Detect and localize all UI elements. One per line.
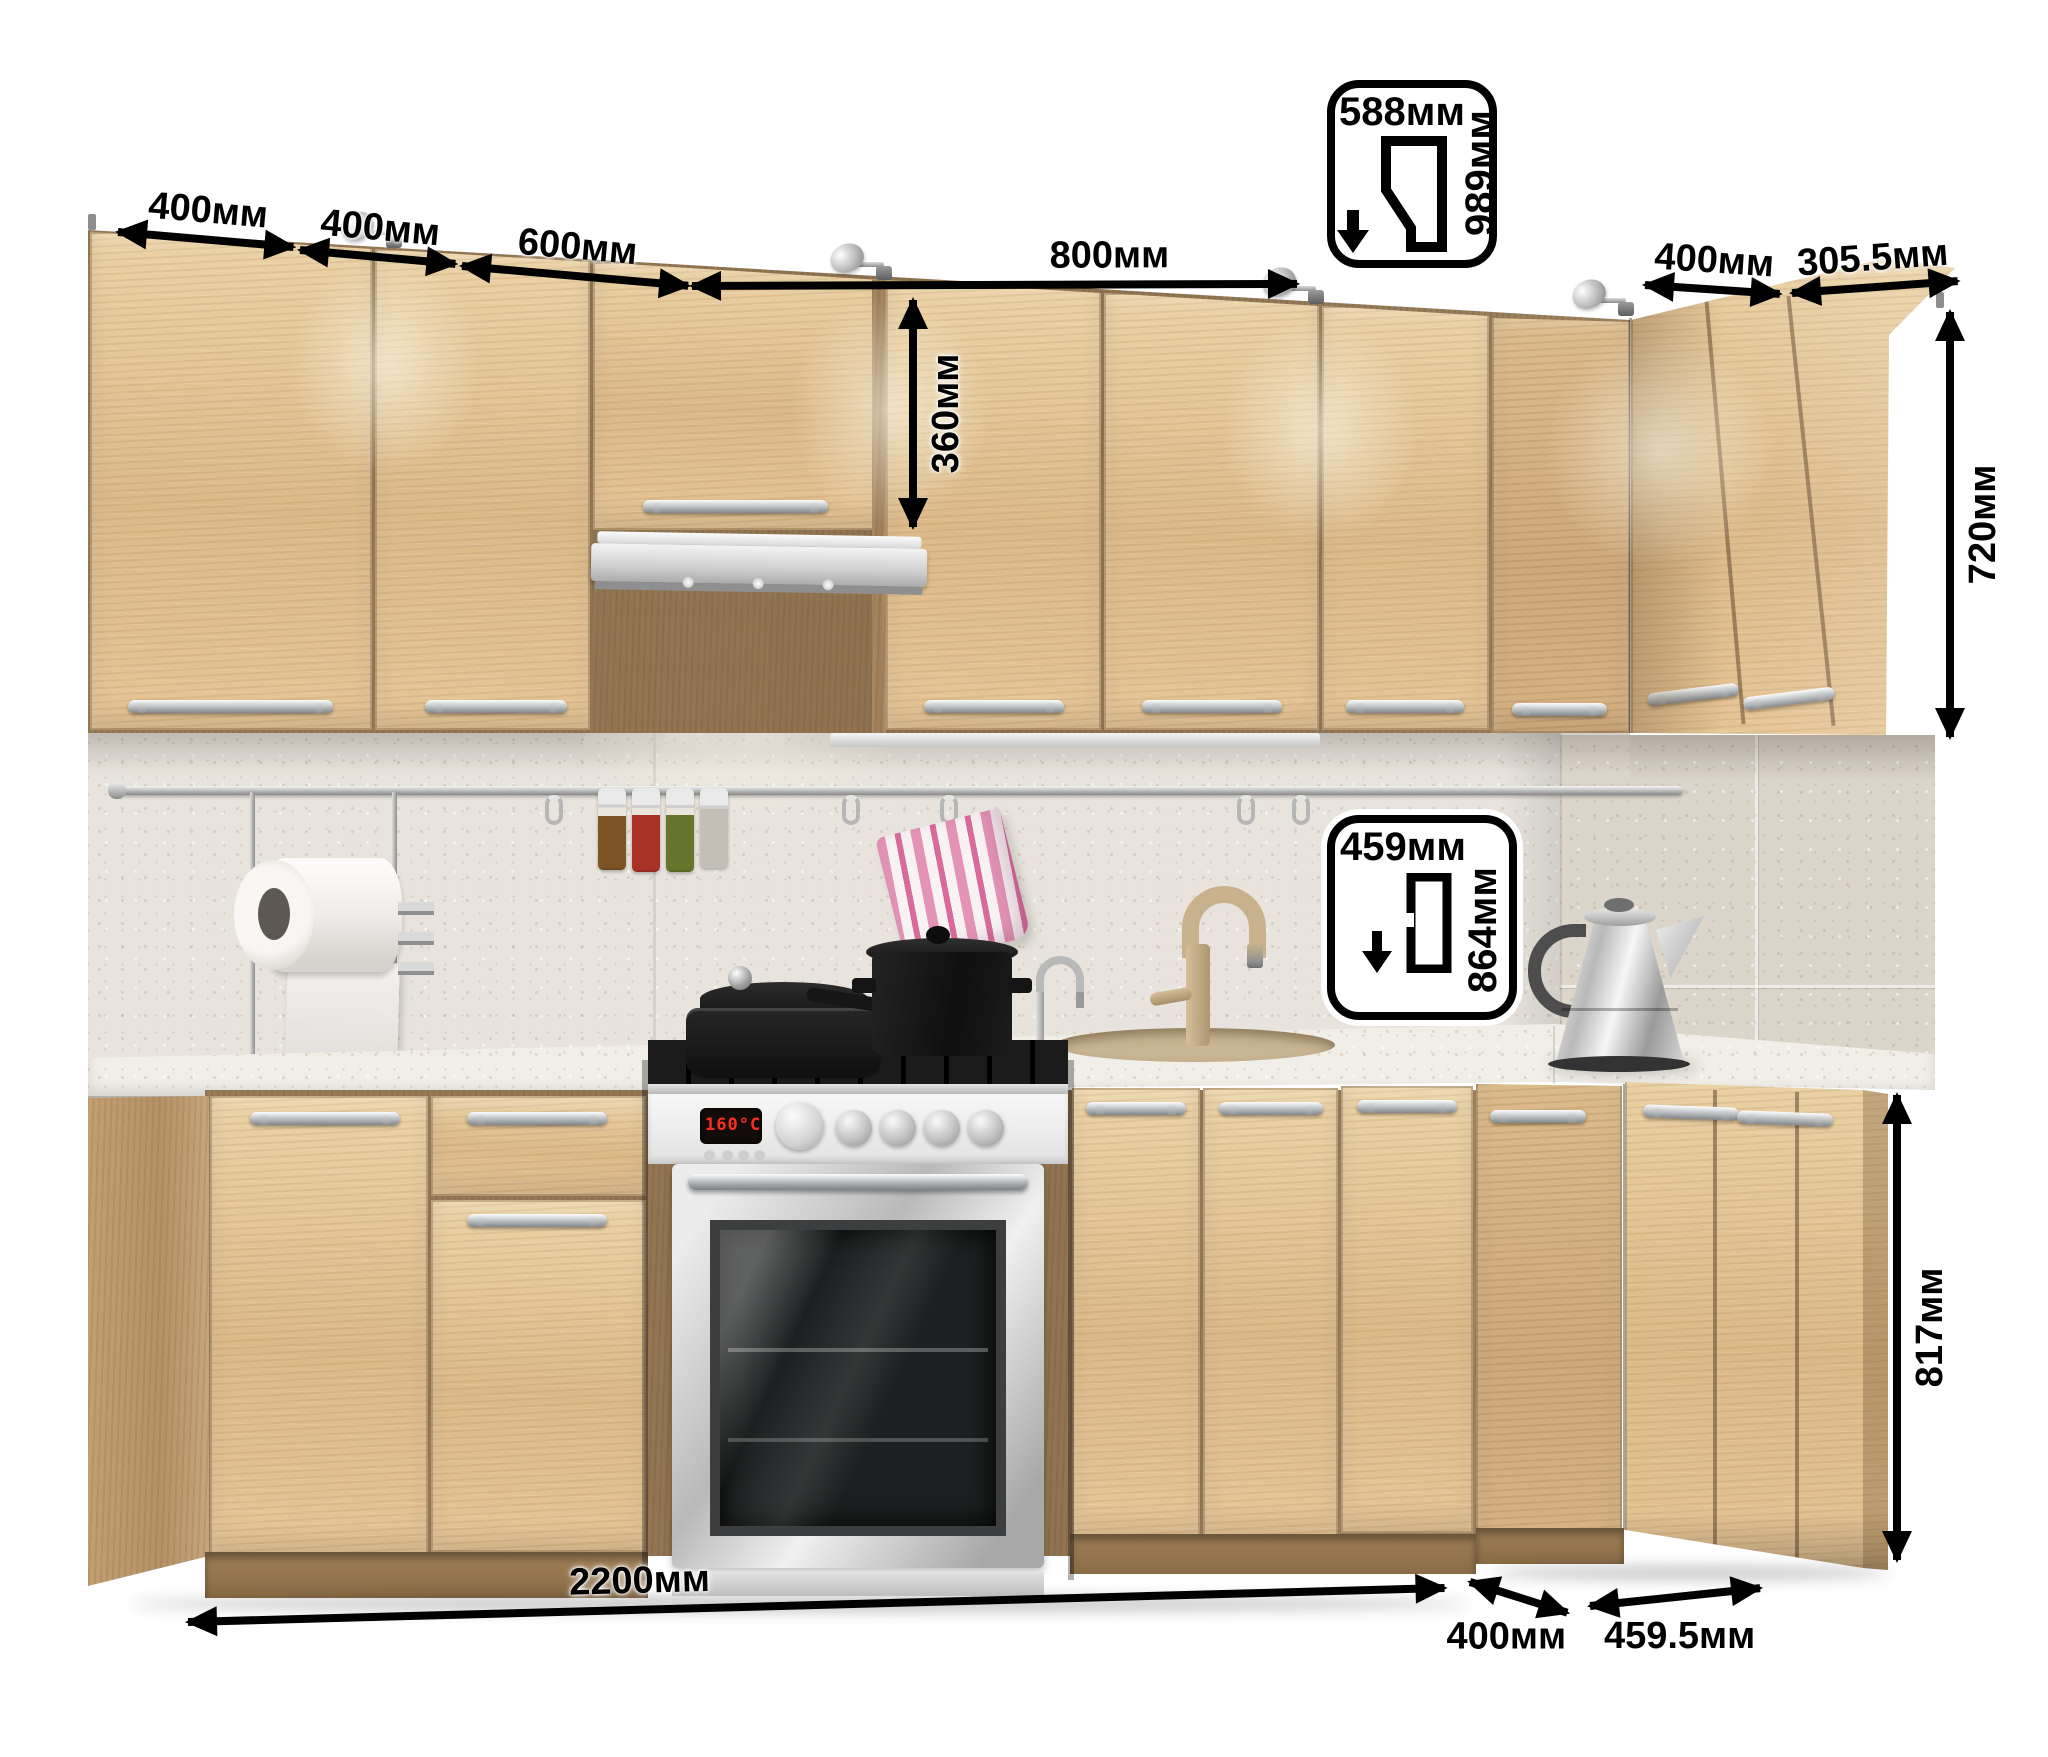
faucet-stem <box>1036 992 1044 1044</box>
arrowhead-right-icon <box>1882 1092 1912 1124</box>
stove-button <box>704 1150 715 1161</box>
dim-wall-cabinet-720: 720мм <box>1946 312 1954 737</box>
wall-cabinet-door-corner <box>1322 306 1489 730</box>
dim-base-right-459: 459.5мм <box>1590 1584 1761 1610</box>
cabinet-handle <box>1357 1100 1457 1113</box>
faucet-tip <box>1076 992 1084 1008</box>
glass-reflection <box>720 1230 996 1526</box>
base-corner-angled-door <box>1476 1056 1622 1561</box>
stockpot <box>872 952 1012 1056</box>
dim-label: 400мм <box>147 187 269 235</box>
stove-display-value: 160°C <box>705 1117 761 1134</box>
wall-pin <box>88 214 96 230</box>
stove-button <box>738 1150 749 1161</box>
oven-glass <box>710 1220 1006 1536</box>
wall-cabinet-right-run <box>1631 240 1963 740</box>
arrowhead-left-icon <box>689 271 721 301</box>
stove-knob <box>836 1110 872 1146</box>
rail-hook <box>842 795 860 825</box>
stove-display: 160°C <box>700 1108 762 1144</box>
arrowhead-right-icon <box>263 230 297 263</box>
under-cabinet-light-strip <box>830 733 1320 747</box>
arrowhead-left-icon <box>114 217 148 250</box>
arrowhead-left-icon <box>458 251 492 284</box>
arrowhead-left-icon <box>185 1606 218 1637</box>
kettle <box>1524 896 1714 1076</box>
stockpot-knob-icon <box>926 926 950 944</box>
right-run-shading <box>1631 240 1963 740</box>
dim-label: 459.5мм <box>1603 1617 1754 1655</box>
kettle-base <box>1548 1056 1690 1072</box>
badge-width-label: 588мм <box>1339 92 1465 132</box>
arrowhead-left-icon <box>898 498 928 530</box>
faucet-spout-tip <box>1247 944 1263 968</box>
stove-knob <box>880 1110 916 1146</box>
cabinet-handle <box>1142 700 1282 713</box>
cabinet-handle <box>1086 1102 1186 1115</box>
holder-slots <box>398 902 434 990</box>
oven-rack <box>728 1438 988 1442</box>
dim-base-corner-400: 400мм <box>1469 1578 1569 1616</box>
arrowhead-left-icon <box>1935 708 1965 740</box>
arrowhead-right-icon <box>1730 1573 1765 1606</box>
base-side-panel-left <box>88 1060 209 1592</box>
badge-height-label: 864мм <box>1463 867 1503 993</box>
wall-rail <box>118 786 1683 795</box>
stockpot-ear <box>852 978 876 993</box>
dim-label: 800мм <box>1049 236 1169 274</box>
rail-hook <box>1237 795 1255 825</box>
stove-dial <box>776 1102 824 1150</box>
cabinet-handle <box>1346 700 1464 713</box>
base-corner-cabinet-badge: 459мм 864мм <box>1327 815 1517 1020</box>
dim-label: 2200мм <box>569 1560 711 1602</box>
wall-cabinet-door-400-1 <box>90 232 372 730</box>
paper-towel-core-hole <box>258 888 290 940</box>
cabinet-handle <box>1512 703 1607 716</box>
oven-door <box>672 1164 1044 1568</box>
lamp-base <box>876 266 892 280</box>
rail-hook <box>545 795 563 825</box>
arrowhead-left-icon <box>1882 1531 1912 1563</box>
dim-label: 400мм <box>1446 1617 1566 1655</box>
oven-rack <box>728 1348 988 1352</box>
wall-cabinet-door-400-2 <box>375 249 590 730</box>
floor-shadow <box>1490 1566 1890 1580</box>
toe-kick <box>1070 1534 1476 1574</box>
cabinet-handle <box>425 700 567 713</box>
oven-handle <box>688 1174 1028 1190</box>
wall-corner-cabinet-badge: 588мм 989мм <box>1327 80 1497 268</box>
rail-hook <box>1292 795 1310 825</box>
dim-label: 400мм <box>1653 238 1775 284</box>
stove-gap <box>1068 1060 1074 1580</box>
dim-label: 600мм <box>516 223 638 271</box>
under-cabinet-shadow-right <box>1630 735 1935 781</box>
stove: 160°C <box>648 1040 1068 1600</box>
cabinet-handle <box>250 1112 400 1125</box>
arrowhead-right-icon <box>898 297 928 329</box>
spice-jar <box>700 788 728 868</box>
lamp-base <box>1308 290 1324 304</box>
stockpot-ear <box>1008 978 1032 993</box>
dim-right-top-400: 400мм <box>1645 281 1780 298</box>
corner-cabinet-plan-icon <box>1337 135 1448 253</box>
base-door-1 <box>210 1096 428 1554</box>
right-run-side-shade <box>1863 1090 1888 1570</box>
dim-label: 305.5мм <box>1796 234 1950 283</box>
lamp-head-icon <box>1568 274 1610 313</box>
saucepan-knob-icon <box>728 966 752 990</box>
lamp-base <box>1618 302 1634 316</box>
cabinet-handle <box>467 1112 607 1125</box>
lamp-head-icon <box>826 238 868 277</box>
cabinet-handle <box>1490 1110 1586 1123</box>
dim-label: 400мм <box>319 204 442 252</box>
door-seam <box>1713 1090 1717 1560</box>
stove-knob <box>924 1110 960 1146</box>
dim-top-800: 800мм <box>692 280 1297 290</box>
arrowhead-right-icon <box>658 268 692 301</box>
spice-jar <box>598 788 626 870</box>
wall-cabinet-door-800-right <box>1104 293 1319 730</box>
kitchen-dimensions-figure: 160°C 400мм 400мм <box>0 0 2048 1757</box>
arrowhead-right-icon <box>1268 269 1300 299</box>
kettle-spout <box>1656 916 1704 978</box>
dim-hood-cabinet-360: 360мм <box>909 300 917 527</box>
spice-jar <box>632 788 660 872</box>
cabinet-handle <box>1643 1104 1739 1120</box>
cabinet-handle <box>643 500 828 513</box>
arrowhead-right-icon <box>1415 1573 1448 1604</box>
kettle-band <box>1562 1008 1678 1011</box>
toe-kick <box>1476 1528 1624 1564</box>
badge-height-label: 989мм <box>1460 110 1500 236</box>
cabinet-handle <box>467 1214 607 1227</box>
wall-cabinet-hood-600 <box>593 262 880 530</box>
spotlight-lamp <box>1572 278 1634 324</box>
dim-label: 817мм <box>1911 1268 1949 1388</box>
dim-base-cabinet-817: 817мм <box>1893 1095 1901 1560</box>
base-right-run <box>1625 1058 1915 1588</box>
cabinet-handle <box>1219 1102 1323 1115</box>
main-faucet <box>1150 886 1270 1051</box>
cabinet-handle <box>924 700 1064 713</box>
stove-button <box>754 1150 765 1161</box>
filter-faucet <box>1030 956 1090 1046</box>
base-door-5 <box>1341 1086 1473 1533</box>
stove-bottom-drawer <box>672 1572 1044 1596</box>
base-drawer <box>431 1096 646 1196</box>
cabinet-handle <box>1737 1110 1833 1126</box>
wall-cabinet-corner-angled <box>1492 316 1630 733</box>
base-door-2 <box>431 1200 646 1552</box>
stove-button <box>722 1150 733 1161</box>
base-door-4 <box>1203 1088 1338 1538</box>
dim-label: 720мм <box>1964 465 2002 585</box>
spice-jar <box>666 788 694 872</box>
badge-width-label: 459мм <box>1340 827 1466 867</box>
range-hood <box>591 531 928 597</box>
saucepan <box>686 1008 882 1078</box>
kettle-knob <box>1604 898 1634 912</box>
arrowhead-right-icon <box>1935 309 1965 341</box>
cabinet-side-panel <box>872 280 886 733</box>
wall-rail-endcap <box>108 782 126 799</box>
stove-knob <box>968 1110 1004 1146</box>
base-door-3 <box>1072 1088 1200 1540</box>
cooktop-lip <box>648 1084 1068 1094</box>
base-cabinet-plan-icon <box>1362 873 1452 973</box>
dim-label: 360мм <box>927 354 965 474</box>
cabinet-handle <box>128 700 333 713</box>
door-seam <box>1795 1092 1799 1562</box>
